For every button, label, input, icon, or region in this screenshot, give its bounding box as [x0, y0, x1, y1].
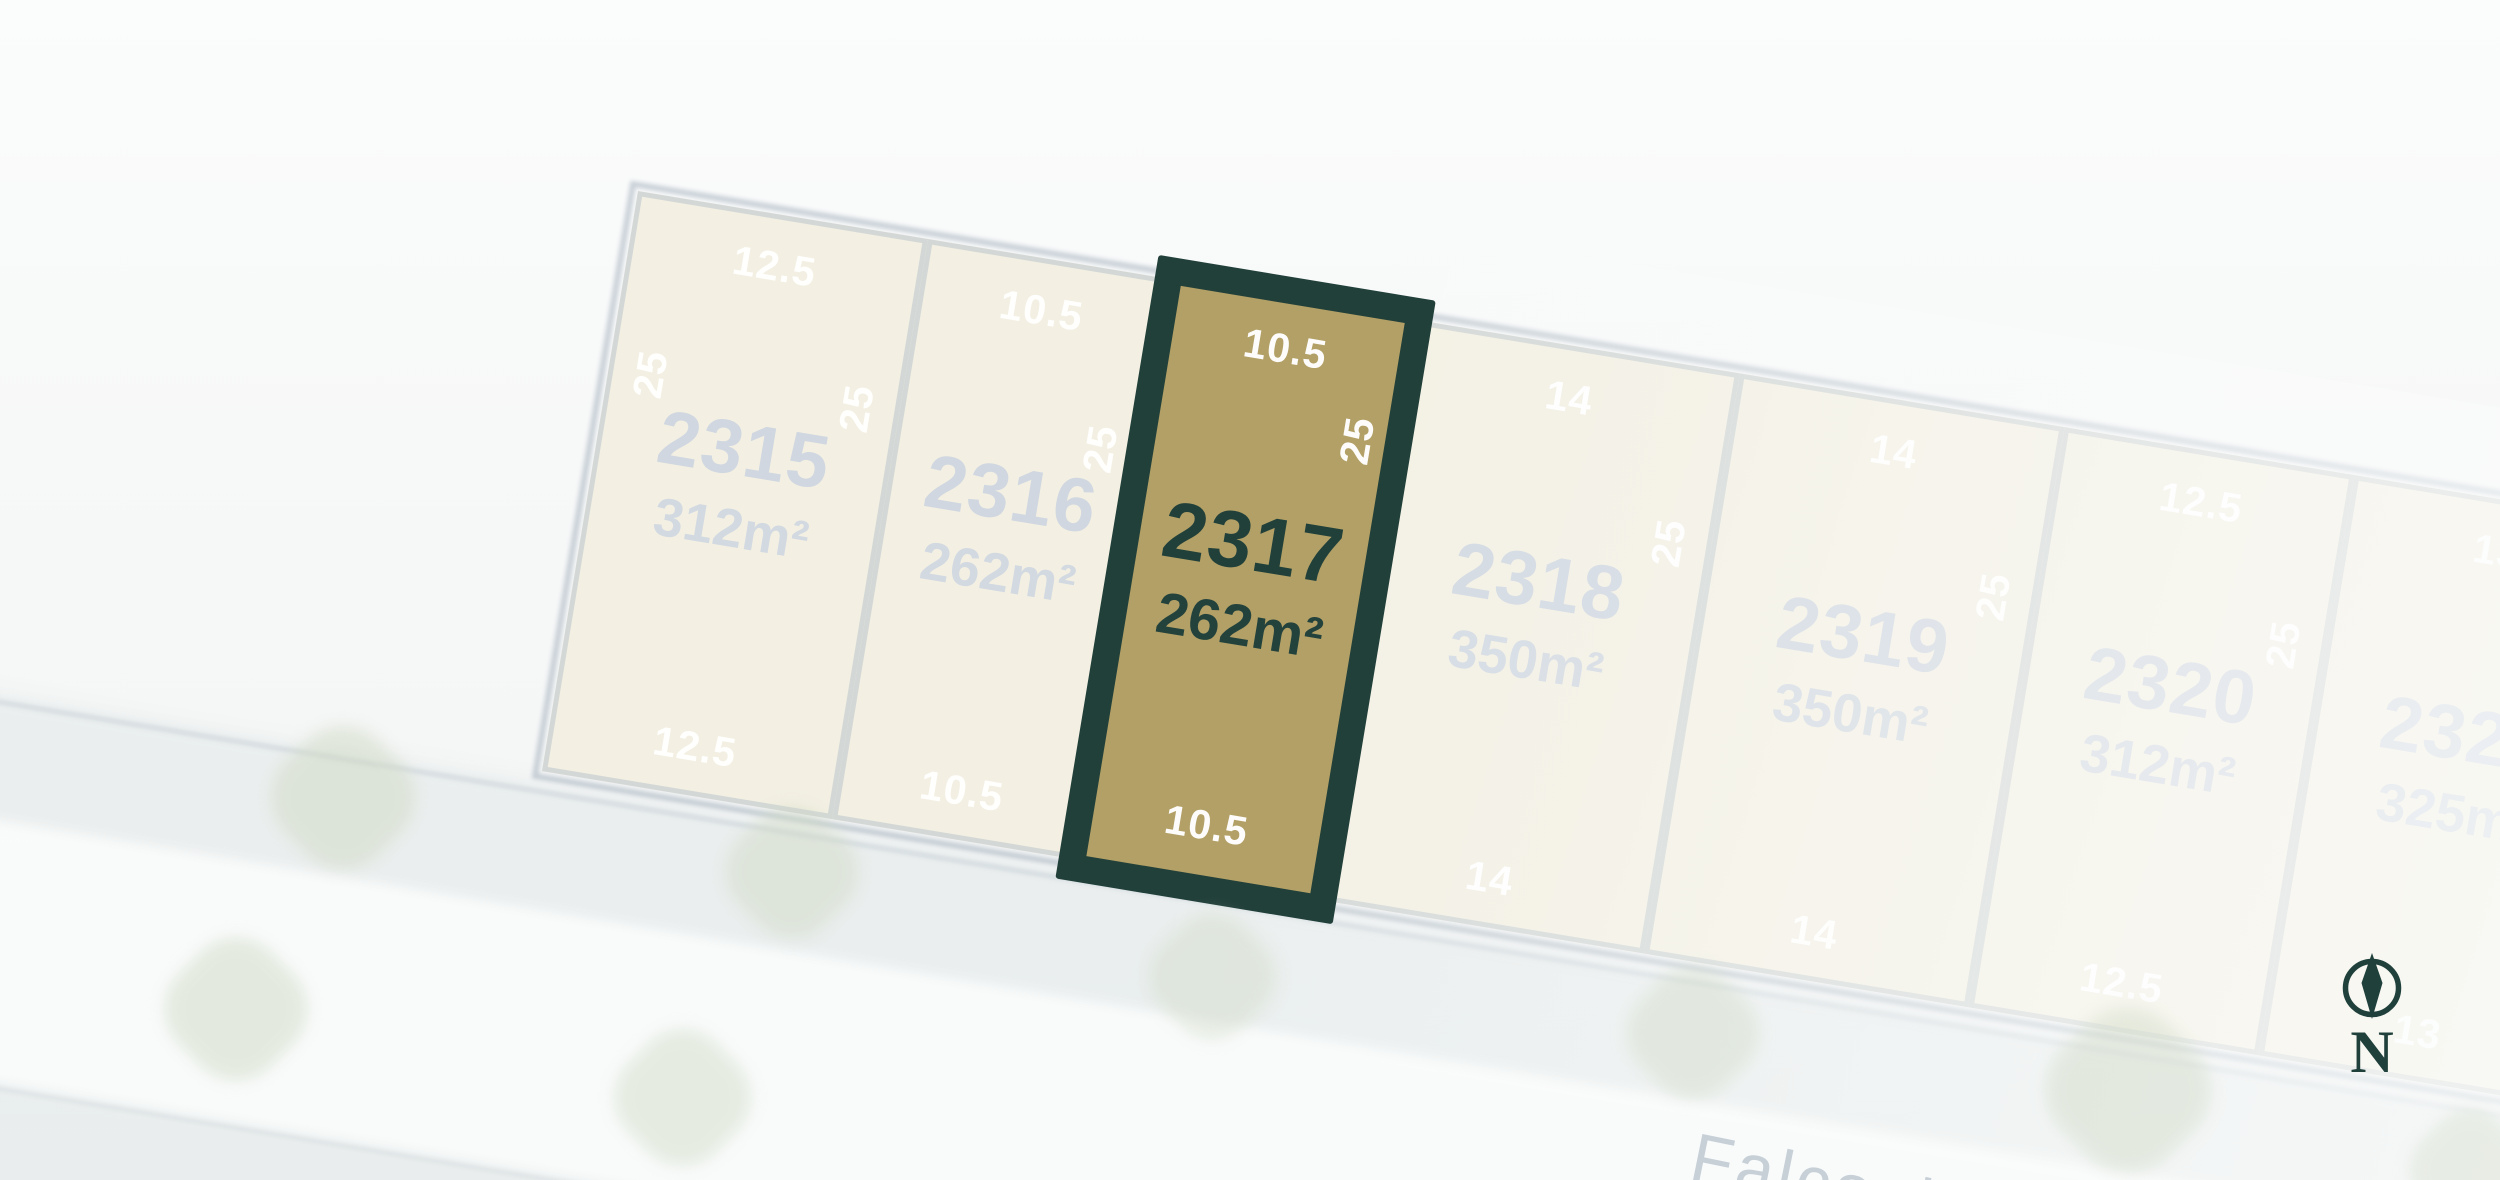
- lot-2319-dim-bottom: 14: [1653, 883, 1975, 981]
- lot-2317-dim-top: 10.5: [1170, 308, 1402, 391]
- lot-2316-dim-top: 10.5: [921, 268, 1162, 353]
- lot-2320-dim-top: 12.5: [2057, 457, 2345, 550]
- lot-2320-dim-bottom: 12.5: [1978, 937, 2266, 1030]
- lot-2319-dim-top: 14: [1733, 403, 2055, 501]
- lot-2321-dim-top: 13: [2347, 505, 2500, 600]
- lot-2316-dim-bottom: 10.5: [841, 749, 1082, 834]
- north-letter: N: [2350, 1019, 2393, 1080]
- lot-2315-dim-top: 12.5: [631, 220, 919, 313]
- lot-2315-dim-bottom: 12.5: [551, 701, 839, 794]
- masterplan-canvas: 12.5 25 25 2315 312m² 12.5 10.5 25 2316 …: [0, 0, 2500, 1180]
- lot-2317-dim-bottom: 10.5: [1091, 784, 1323, 867]
- lot-2318-dim-bottom: 14: [1328, 830, 1650, 928]
- north-compass-icon: N: [2333, 948, 2413, 1080]
- lot-2317-dim-right: 25: [1330, 413, 1384, 468]
- lot-2318-dim-top: 14: [1408, 349, 1730, 447]
- estate-block: 12.5 25 25 2315 312m² 12.5 10.5 25 2316 …: [542, 191, 2500, 1105]
